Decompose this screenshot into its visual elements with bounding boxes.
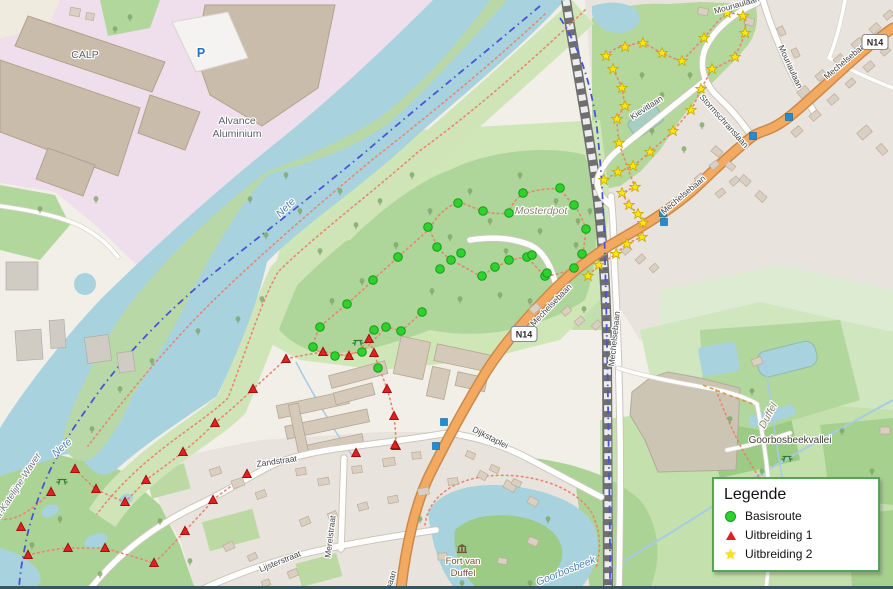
basisroute-marker [369, 276, 378, 285]
basisroute-marker [358, 348, 367, 357]
basisroute-marker [528, 251, 537, 260]
bus-stop-icon [441, 419, 448, 426]
place-label: Mosterdpot [515, 205, 569, 217]
legend-item-label: Uitbreiding 2 [745, 547, 812, 561]
basisroute-marker [505, 209, 514, 218]
basisroute-marker [370, 326, 379, 335]
basisroute-marker [394, 253, 403, 262]
basisroute-marker [457, 249, 466, 258]
basisroute-marker [479, 207, 488, 216]
legend-item-uitbreiding-2: ★ Uitbreiding 2 [724, 547, 868, 561]
legend-item-label: Uitbreiding 1 [745, 528, 812, 542]
map-screenshot: P CALPAlvanceAluminiumMosterdpotNeteNete… [0, 0, 893, 589]
basisroute-marker [316, 323, 325, 332]
place-label: Fort van [446, 556, 481, 567]
basisroute-marker [447, 256, 456, 265]
basisroute-marker [582, 225, 591, 234]
parking-icon: P [197, 46, 205, 60]
basisroute-marker [343, 300, 352, 309]
house-building [498, 557, 508, 564]
basisroute-marker [570, 264, 579, 273]
place-label: Duffel [451, 568, 476, 579]
basisroute-marker [543, 269, 552, 278]
basisroute-marker [570, 201, 579, 210]
basisroute-marker [556, 184, 565, 193]
place-label: Alvance [218, 115, 256, 127]
house-building [880, 427, 890, 434]
house-building [69, 7, 80, 17]
badge-text: N14 [516, 330, 533, 340]
house-building [448, 477, 459, 485]
place-label: Goorbosbeekvallei [749, 435, 832, 446]
building [15, 329, 43, 361]
legend-item-label: Basisroute [745, 509, 802, 523]
bus-stop-icon [750, 133, 757, 140]
basisroute-marker [382, 323, 391, 332]
house-building [383, 457, 396, 467]
red-triangle-icon [724, 531, 737, 540]
basisroute-marker [519, 189, 528, 198]
basisroute-marker [374, 364, 383, 373]
house-building [352, 465, 363, 473]
basisroute-marker [309, 343, 318, 352]
yellow-star-icon: ★ [724, 549, 737, 559]
basisroute-marker [397, 327, 406, 336]
house-building [417, 487, 429, 496]
legend-title: Legende [724, 486, 868, 504]
basisroute-marker [491, 263, 500, 272]
road-ref-badge: N14 [511, 327, 537, 342]
building [84, 334, 111, 363]
house-building [295, 467, 306, 476]
green-circle-icon [724, 511, 737, 522]
bus-stop-icon [433, 443, 440, 450]
basisroute-marker [424, 223, 433, 232]
building [117, 351, 136, 373]
place-label: CALP [71, 49, 98, 61]
legend-item-basisroute: Basisroute [724, 509, 868, 523]
legend-item-uitbreiding-1: Uitbreiding 1 [724, 528, 868, 542]
basisroute-marker [436, 265, 445, 274]
building [6, 262, 38, 290]
basisroute-marker [478, 272, 487, 281]
building [49, 320, 66, 349]
house-building [85, 12, 94, 20]
bus-stop-icon [661, 219, 668, 226]
place-label: Aluminium [212, 128, 261, 140]
basisroute-marker [331, 352, 340, 361]
basisroute-marker [454, 199, 463, 208]
badge-text: N14 [867, 38, 884, 48]
legend: Legende Basisroute Uitbreiding 1 ★ Uitbr… [712, 477, 880, 572]
basisroute-marker [433, 243, 442, 252]
basisroute-marker [505, 256, 514, 265]
basisroute-marker [578, 250, 587, 259]
house-building [317, 477, 329, 486]
house-building [412, 452, 422, 460]
bus-stop-icon [786, 114, 793, 121]
basisroute-marker [418, 308, 427, 317]
road-ref-badge: N14 [862, 35, 888, 50]
